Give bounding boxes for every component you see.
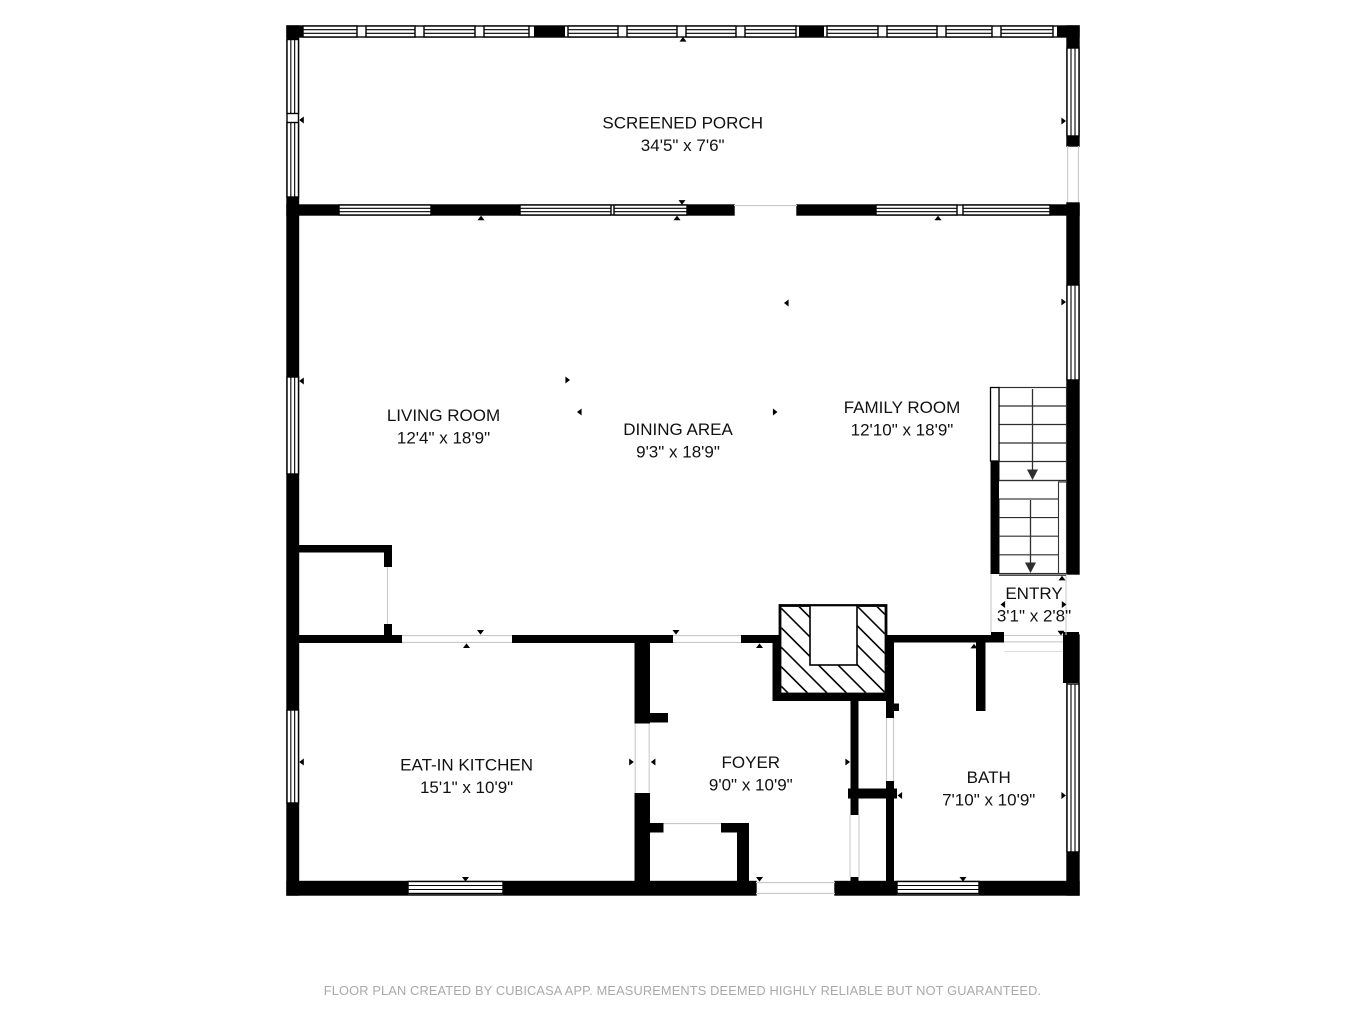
svg-text:SCREENED PORCH: SCREENED PORCH <box>602 114 763 133</box>
svg-text:ENTRY: ENTRY <box>1005 584 1062 603</box>
svg-text:EAT-IN KITCHEN: EAT-IN KITCHEN <box>400 755 533 774</box>
svg-text:9'0" x 10'9": 9'0" x 10'9" <box>709 776 793 795</box>
svg-text:FLOOR PLAN CREATED BY CUBICASA: FLOOR PLAN CREATED BY CUBICASA APP. MEAS… <box>324 983 1041 998</box>
svg-text:DINING AREA: DINING AREA <box>623 420 733 439</box>
svg-text:3'1" x 2'8": 3'1" x 2'8" <box>997 607 1071 626</box>
svg-text:34'5" x 7'6": 34'5" x 7'6" <box>641 136 725 155</box>
svg-text:12'4" x 18'9": 12'4" x 18'9" <box>397 428 490 447</box>
svg-text:BATH: BATH <box>967 768 1011 787</box>
svg-text:LIVING ROOM: LIVING ROOM <box>387 406 500 425</box>
svg-text:FAMILY ROOM: FAMILY ROOM <box>844 398 961 417</box>
svg-text:7'10" x 10'9": 7'10" x 10'9" <box>942 790 1035 809</box>
svg-text:12'10" x 18'9": 12'10" x 18'9" <box>851 421 954 440</box>
svg-text:FOYER: FOYER <box>722 753 781 772</box>
svg-text:15'1" x 10'9": 15'1" x 10'9" <box>420 778 513 797</box>
svg-text:9'3" x 18'9": 9'3" x 18'9" <box>636 442 720 461</box>
